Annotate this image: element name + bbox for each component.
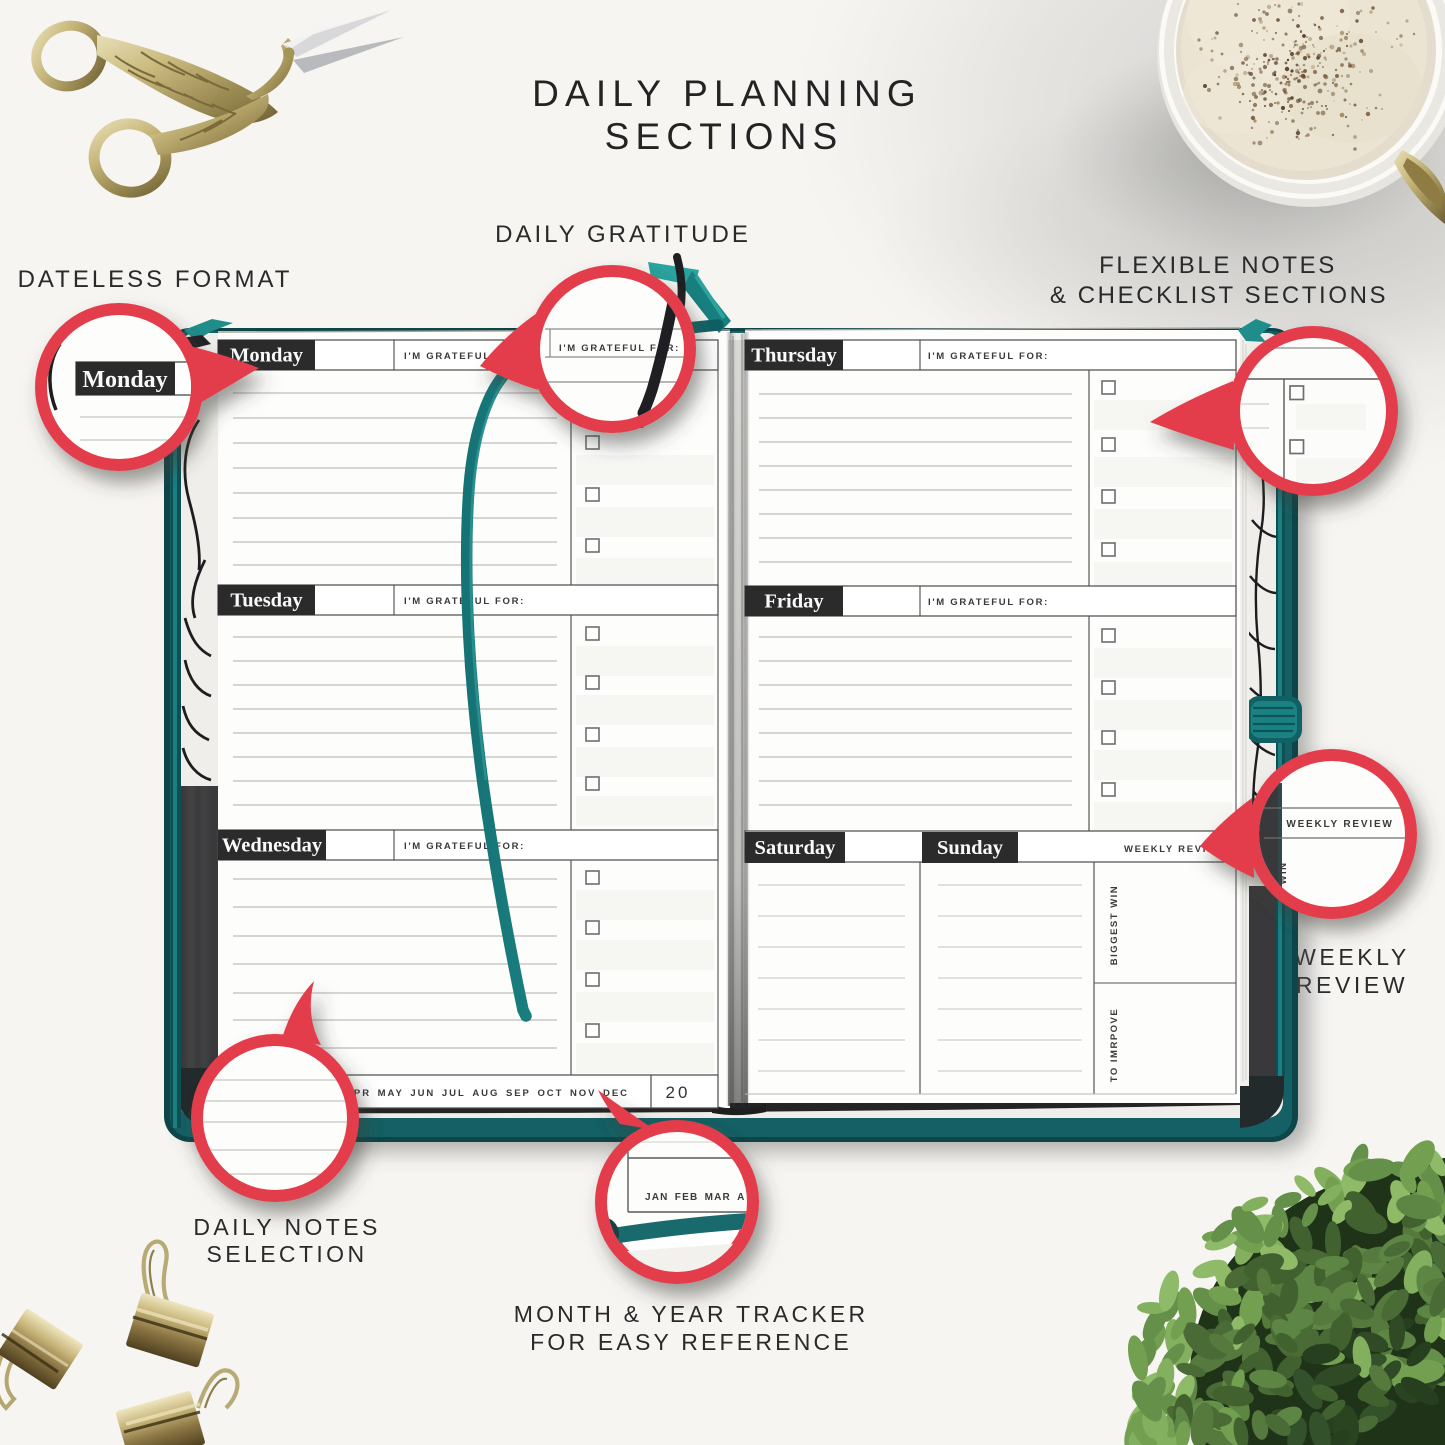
svg-text:WEEKLY: WEEKLY (1294, 944, 1410, 970)
svg-text:Wednesday: Wednesday (222, 835, 323, 857)
svg-text:Tuesday: Tuesday (230, 590, 303, 612)
svg-text:WIN: WIN (1278, 862, 1289, 885)
svg-text:WEEKLY REVIEW: WEEKLY REVIEW (1286, 819, 1393, 830)
svg-text:20: 20 (666, 1083, 691, 1102)
svg-text:Monday: Monday (82, 367, 167, 393)
svg-text:Thursday: Thursday (751, 345, 837, 367)
svg-text:BIGGEST WIN: BIGGEST WIN (1109, 885, 1120, 965)
svg-text:FOR EASY REFERENCE: FOR EASY REFERENCE (530, 1329, 852, 1355)
svg-text:DAILY GRATITUDE: DAILY GRATITUDE (495, 221, 751, 248)
svg-text:SELECTION: SELECTION (207, 1241, 368, 1267)
svg-text:MONTH & YEAR TRACKER: MONTH & YEAR TRACKER (514, 1301, 869, 1327)
svg-text:I'M GRATEFUL FOR:: I'M GRATEFUL FOR: (928, 351, 1049, 362)
svg-text:TO IMRPOVE: TO IMRPOVE (1109, 1008, 1120, 1082)
svg-text:JAN FEB MAR A: JAN FEB MAR A (645, 1192, 746, 1203)
svg-text:DAILY NOTES: DAILY NOTES (193, 1214, 380, 1240)
svg-text:SECTIONS: SECTIONS (605, 116, 844, 157)
svg-text:I'M GRATEFUL FOR:: I'M GRATEFUL FOR: (928, 597, 1049, 608)
svg-text:Saturday: Saturday (755, 837, 837, 859)
svg-text:DATELESS FORMAT: DATELESS FORMAT (18, 266, 293, 293)
svg-text:Sunday: Sunday (937, 837, 1004, 859)
svg-text:Friday: Friday (764, 591, 824, 613)
svg-text:& CHECKLIST SECTIONS: & CHECKLIST SECTIONS (1050, 282, 1388, 309)
svg-text:REVIEW: REVIEW (1296, 972, 1408, 998)
svg-text:DAILY PLANNING: DAILY PLANNING (532, 73, 922, 114)
svg-text:FLEXIBLE NOTES: FLEXIBLE NOTES (1099, 252, 1337, 279)
svg-text:I'M GRATEFUL FOR:: I'M GRATEFUL FOR: (404, 841, 525, 852)
